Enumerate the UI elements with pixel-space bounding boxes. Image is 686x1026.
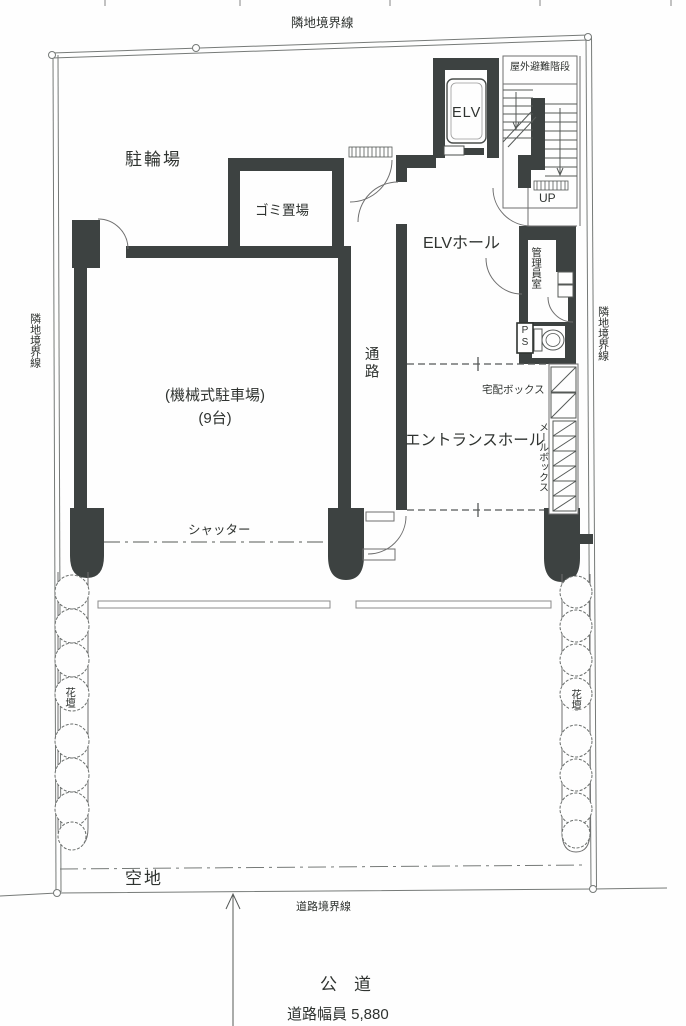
- road-width-label: 道路幅員 5,880: [287, 1006, 389, 1023]
- manager-room-label: 管理員室: [530, 247, 542, 289]
- road-arrow: [226, 894, 240, 1026]
- scan-marks: [105, 0, 671, 6]
- corridor-label: 通路: [362, 346, 379, 381]
- elv-hall-label: ELVホール: [423, 235, 500, 253]
- floor-plan-drawing: [0, 0, 686, 1026]
- pipe-space-label: PS: [519, 325, 531, 348]
- elevator-label: ELV: [452, 105, 481, 122]
- bicycle-parking-label: 駐輪場: [125, 150, 182, 170]
- vacant-lot-label: 空地: [125, 869, 163, 889]
- delivery-box-label: 宅配ボックス: [482, 384, 545, 396]
- floor-plan: 隣地境界線 隣地境界線 隣地境界線 駐輪場 ゴミ置場 ELV 屋外避難階段 UP…: [0, 0, 686, 1026]
- flower-bed-left-label: 花壇: [63, 687, 77, 708]
- flower-bed-right-label: 花壇: [569, 689, 583, 710]
- mech-parking-count-label: (9台): [140, 410, 290, 427]
- outdoor-stairs-label: 屋外避難階段: [505, 62, 575, 74]
- boundary-top-label: 隣地境界線: [291, 16, 354, 30]
- mech-parking-label: (機械式駐車場): [140, 387, 290, 404]
- shutter-label: シャッター: [188, 523, 251, 537]
- boundary-right-label: 隣地境界線: [596, 306, 609, 361]
- public-road-label: 公 道: [320, 975, 371, 995]
- up-label: UP: [539, 192, 556, 206]
- delivery-mail-boxes: [549, 364, 578, 514]
- flower-beds: [55, 572, 592, 852]
- entrance-hall-label: エントランスホール: [405, 432, 544, 450]
- boundary-left-label: 隣地境界線: [28, 313, 41, 368]
- walls: [70, 58, 593, 582]
- road-boundary-label: 道路境界線: [296, 901, 351, 914]
- garbage-room-label: ゴミ置場: [255, 203, 309, 219]
- mail-box-label: メールボックス: [536, 422, 548, 492]
